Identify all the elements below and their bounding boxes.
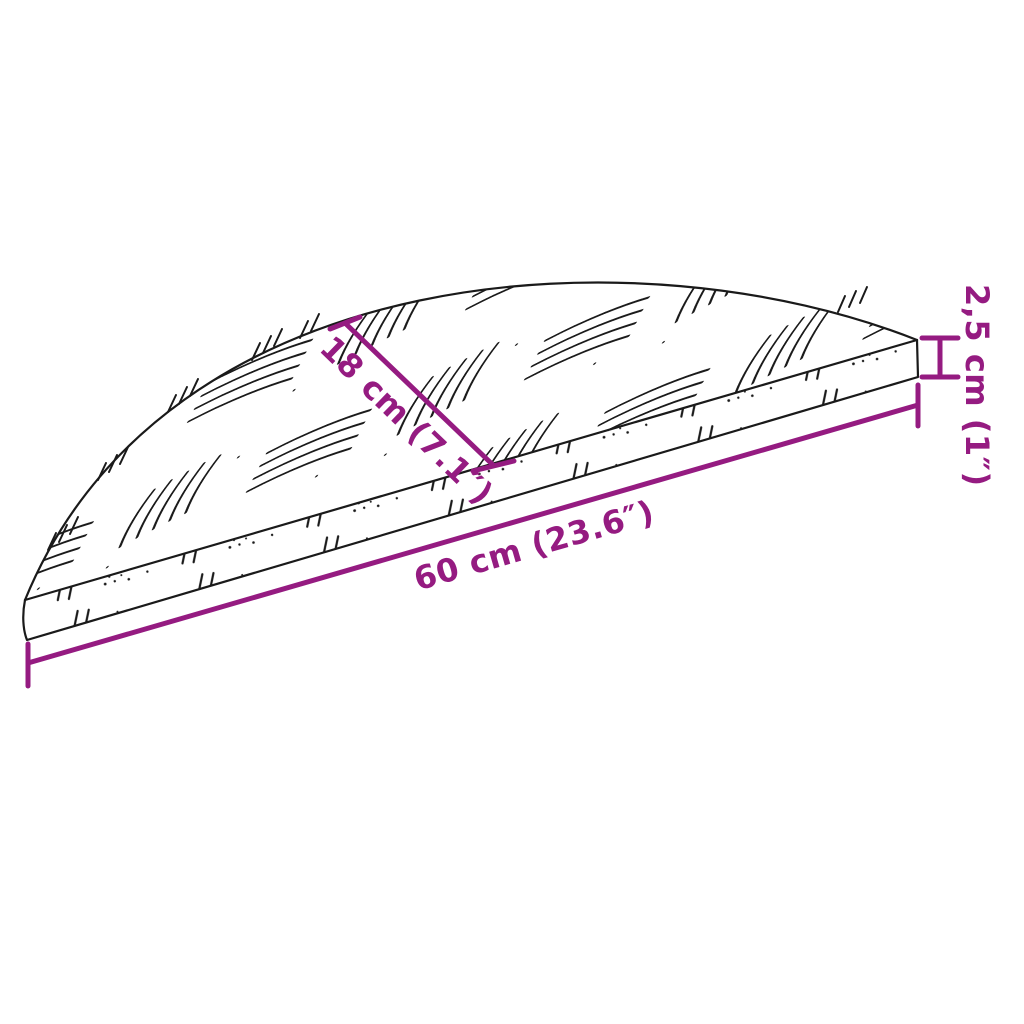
thickness-dimension-label: 2,5 cm (1″) — [958, 284, 996, 487]
stair-tread-dimension-diagram: 18 cm (7.1″) 60 cm (23.6″) 2,5 cm (1″) — [0, 0, 1024, 1024]
diagram-stage: 18 cm (7.1″) 60 cm (23.6″) 2,5 cm (1″) — [0, 0, 1024, 1024]
